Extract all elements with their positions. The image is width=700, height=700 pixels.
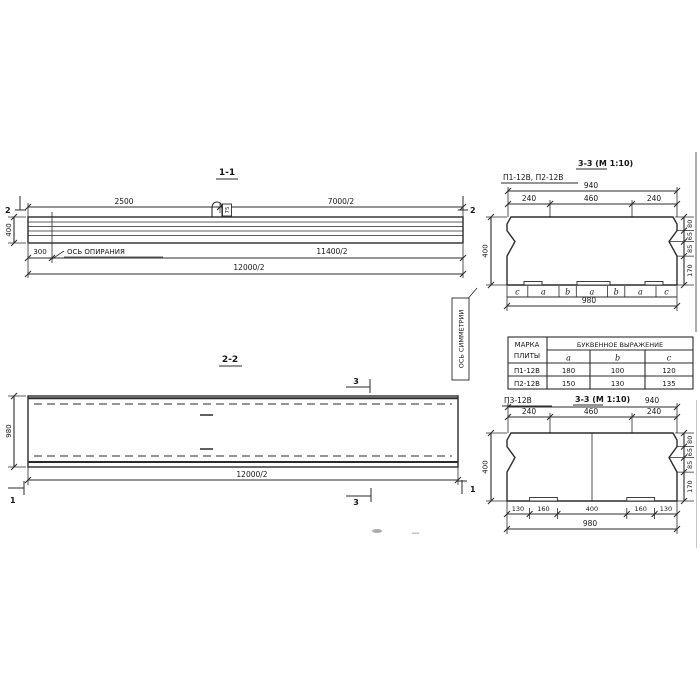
- dim-130-left: 130: [512, 505, 524, 513]
- dim-980-line: 980: [504, 519, 680, 534]
- dim-85: 85: [686, 245, 694, 253]
- dim-400: 400: [5, 223, 13, 236]
- left-width-dimension: 980: [5, 393, 26, 470]
- section-mark-label: 1: [470, 485, 476, 494]
- dim-240-460-240-line: 240 460 240: [505, 194, 680, 217]
- section-mark-label: 3: [353, 498, 359, 507]
- symmetry-axis-label: ОСЬ СИММЕТРИИ: [458, 310, 466, 369]
- dim-940: 940: [645, 396, 660, 405]
- dim-240-left: 240: [522, 194, 537, 203]
- section-mark-label: 3: [353, 377, 359, 386]
- lifting-loop: 75: [212, 202, 232, 217]
- dim-12000-2: 12000/2: [236, 470, 267, 479]
- letter-expression-table: МАРКА ПЛИТЫ БУКВЕННОЕ ВЫРАЖЕНИЕ a b c П1…: [508, 337, 693, 389]
- value-b: 130: [611, 380, 624, 388]
- view-2-2: 2-2 3 980 12000/2 1: [5, 288, 477, 507]
- drawing-canvas: 1-1 2 2 2500 7000/2 75: [0, 0, 700, 700]
- section-mark-3-top: 3: [346, 377, 370, 393]
- section-mark-label: 2: [470, 206, 476, 215]
- dim-240-460-240-line: 240 460 240: [505, 407, 680, 433]
- dim-160-right: 160: [634, 505, 646, 513]
- dim-65: 65: [686, 448, 694, 456]
- letter-b: b: [614, 288, 619, 297]
- bottom-dimension-line: 12000/2: [25, 467, 461, 485]
- col-a: a: [566, 354, 571, 363]
- overall-dimension-line: 12000/2: [25, 263, 466, 277]
- bottom-recess: [627, 498, 655, 502]
- dim-980-line: 980: [504, 296, 680, 311]
- letter-a: a: [638, 288, 643, 297]
- dim-240-right: 240: [647, 194, 662, 203]
- dim-940: 940: [584, 181, 599, 190]
- section-mark-label: 1: [10, 496, 16, 505]
- col-b: b: [615, 354, 620, 363]
- section-title: 3-3 (М 1:10): [575, 395, 630, 404]
- dim-85: 85: [686, 461, 694, 469]
- dim-460: 460: [584, 194, 599, 203]
- scan-smudge: [372, 529, 382, 533]
- dim-400: 400: [482, 460, 490, 473]
- left-height-dimension: 400: [482, 214, 508, 288]
- section-mark-2-left: 2: [5, 196, 26, 215]
- dim-980: 980: [582, 296, 597, 305]
- scan-smudge: [412, 533, 419, 535]
- dim-170: 170: [686, 264, 694, 276]
- beam-layer-lines: [28, 222, 463, 236]
- symmetry-axis-leader: [469, 288, 478, 298]
- header-mark-line1: МАРКА: [515, 341, 540, 349]
- beam-outline: [28, 217, 463, 243]
- bottom-recess: [577, 282, 610, 286]
- view-1-1-title: 1-1: [219, 168, 235, 178]
- dim-80: 80: [686, 220, 694, 228]
- header-expression: БУКВЕННОЕ ВЫРАЖЕНИЕ: [577, 341, 663, 349]
- lower-dimension-line: 300 11400/2 ОСЬ ОПИРАНИЯ: [25, 244, 466, 278]
- symmetry-axis-tag: ОСЬ СИММЕТРИИ: [452, 288, 477, 380]
- row-mark: П1-12В: [514, 367, 540, 375]
- dim-460: 460: [584, 407, 599, 416]
- section-3-3-bottom: П3-12В 3-3 (М 1:10) 940 240 460 240 400: [482, 395, 695, 534]
- section-3-3-top: 3-3 (М 1:10) П1-12В, П2-12В 940 240 460 …: [482, 159, 695, 311]
- value-a: 150: [562, 380, 575, 388]
- dim-170: 170: [686, 480, 694, 492]
- dim-240-right: 240: [647, 407, 662, 416]
- section-title: 3-3 (М 1:10): [578, 159, 633, 168]
- blueprint-page: 1-1 2 2 2500 7000/2 75: [0, 0, 700, 700]
- bottom-recess: [530, 498, 558, 502]
- dim-160-left: 160: [537, 505, 549, 513]
- slab-cross-section: [507, 217, 677, 285]
- section-mark-label: 2: [5, 206, 11, 215]
- left-height-dimension: 400: [482, 430, 508, 504]
- dim-240-left: 240: [522, 407, 537, 416]
- center-marks: [200, 415, 213, 449]
- right-dimension-chain: 80 65 85 170: [669, 430, 694, 504]
- plate-marks-label: П1-12В, П2-12В: [503, 173, 563, 182]
- section-mark-2-right: 2: [458, 196, 476, 215]
- value-b: 100: [611, 367, 624, 375]
- header-mark-line2: ПЛИТЫ: [514, 352, 540, 360]
- view-2-2-title: 2-2: [222, 355, 238, 365]
- dim-130-right: 130: [660, 505, 672, 513]
- bottom-recess: [645, 282, 663, 286]
- support-axis-label: ОСЬ ОПИРАНИЯ: [67, 248, 125, 256]
- right-dimension-chain: 80 65 85 170: [669, 214, 694, 288]
- dim-7000-2: 7000/2: [328, 197, 355, 206]
- bottom-recess: [524, 282, 542, 286]
- dim-980: 980: [5, 424, 13, 437]
- dim-980: 980: [583, 519, 598, 528]
- dim-400: 400: [482, 244, 490, 257]
- top-dimension-line: 2500 7000/2: [25, 197, 466, 217]
- slab-plan: [28, 396, 458, 467]
- letter-c: c: [664, 288, 669, 297]
- dim-12000-2: 12000/2: [233, 263, 264, 272]
- letter-a: a: [541, 288, 546, 297]
- value-c: 135: [662, 380, 675, 388]
- letter-b: b: [565, 288, 570, 297]
- section-mark-1-left: 1: [8, 481, 24, 505]
- dim-2500: 2500: [114, 197, 133, 206]
- row-mark: П2-12В: [514, 380, 540, 388]
- dim-11400-2: 11400/2: [316, 247, 347, 256]
- table-row: П2-12В 150 130 135: [514, 380, 676, 388]
- dim-80: 80: [686, 436, 694, 444]
- section-mark-1-right: 1: [457, 480, 476, 494]
- view-1-1: 1-1 2 2 2500 7000/2 75: [5, 168, 476, 278]
- col-c: c: [667, 354, 672, 363]
- value-a: 180: [562, 367, 575, 375]
- loop-tag-label: 75: [225, 206, 231, 213]
- bottom-dimension-chain: 130 160 400 160 130: [504, 501, 680, 519]
- table-row: П1-12В 180 100 120: [514, 367, 676, 375]
- value-c: 120: [662, 367, 675, 375]
- letter-c: c: [515, 288, 520, 297]
- dim-400-center: 400: [586, 505, 598, 513]
- left-height-dimension: 400: [5, 214, 26, 246]
- dim-300: 300: [33, 248, 46, 256]
- dim-65: 65: [686, 232, 694, 240]
- section-mark-3-bottom: 3: [346, 488, 371, 507]
